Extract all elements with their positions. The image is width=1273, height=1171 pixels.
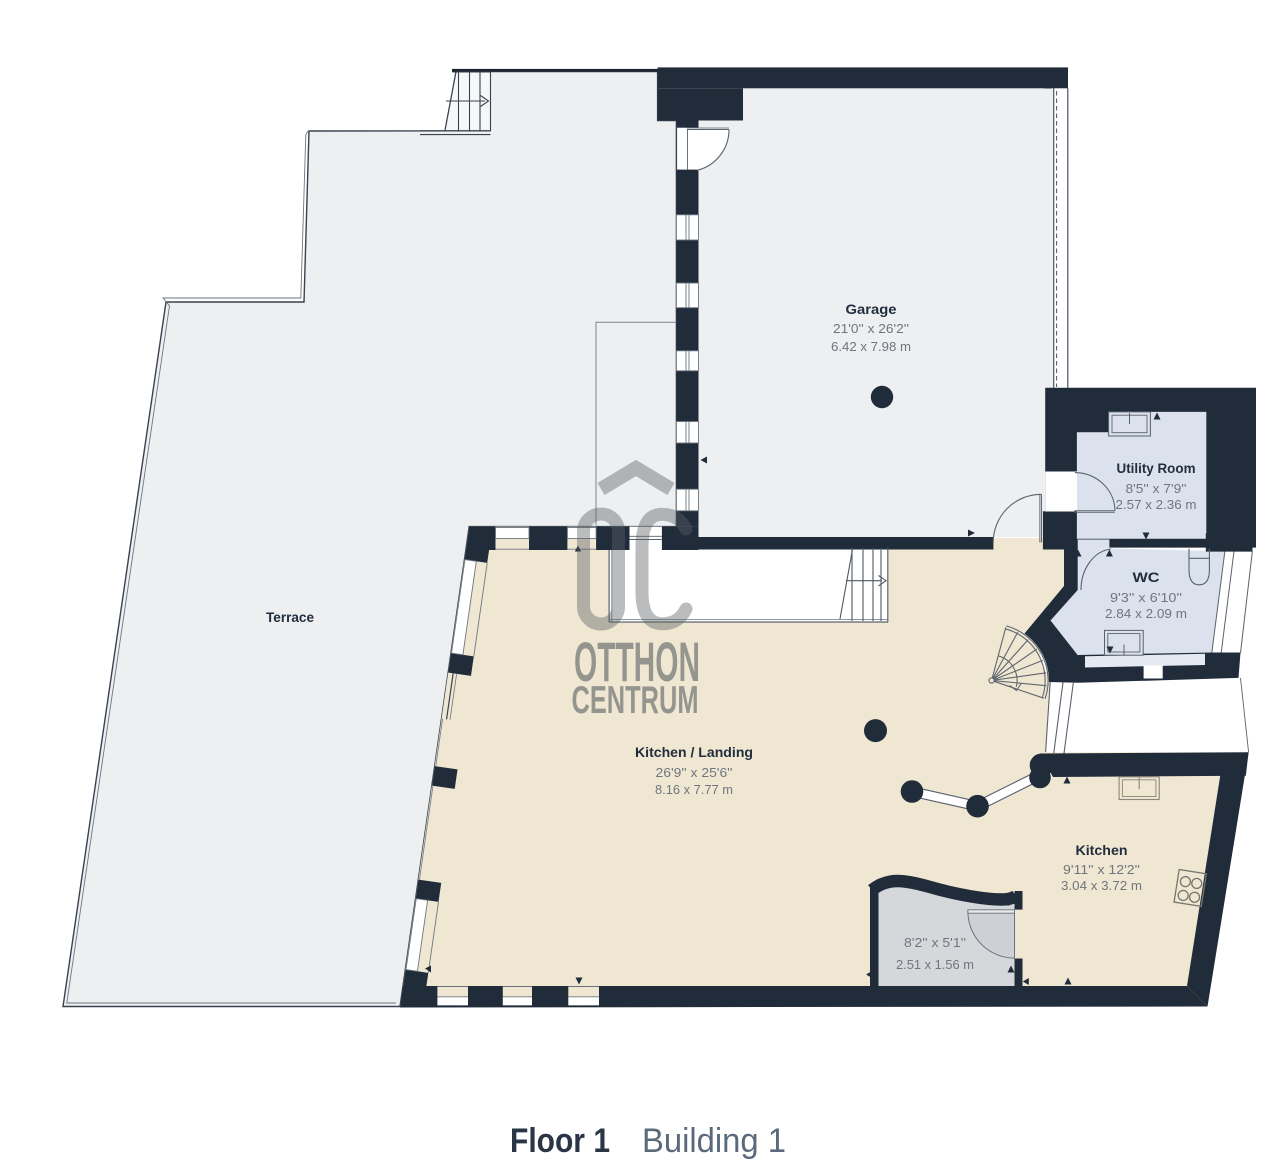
svg-text:Utility Room: Utility Room — [1117, 461, 1196, 476]
svg-text:2.51 x 1.56 m: 2.51 x 1.56 m — [896, 958, 974, 972]
svg-text:Terrace: Terrace — [266, 610, 314, 625]
svg-text:CENTRUM: CENTRUM — [572, 679, 699, 722]
svg-text:6.42 x 7.98 m: 6.42 x 7.98 m — [831, 340, 911, 354]
svg-text:8.16 x 7.77 m: 8.16 x 7.77 m — [655, 783, 733, 797]
svg-text:Garage: Garage — [846, 302, 898, 317]
svg-text:2.84 x 2.09 m: 2.84 x 2.09 m — [1105, 607, 1187, 621]
svg-text:2.57 x 2.36 m: 2.57 x 2.36 m — [1116, 498, 1197, 512]
svg-text:8'2'' x 5'1'': 8'2'' x 5'1'' — [904, 936, 966, 950]
svg-text:Building 1: Building 1 — [642, 1122, 786, 1160]
svg-text:26'9'' x 25'6'': 26'9'' x 25'6'' — [656, 766, 733, 780]
svg-text:9'3'' x 6'10'': 9'3'' x 6'10'' — [1110, 591, 1182, 605]
svg-text:Kitchen / Landing: Kitchen / Landing — [635, 745, 753, 760]
svg-text:9'11'' x 12'2'': 9'11'' x 12'2'' — [1063, 863, 1140, 877]
svg-text:Kitchen: Kitchen — [1076, 843, 1128, 858]
svg-text:8'5'' x 7'9'': 8'5'' x 7'9'' — [1126, 482, 1187, 496]
svg-text:21'0'' x 26'2'': 21'0'' x 26'2'' — [833, 322, 909, 336]
svg-text:WC: WC — [1133, 570, 1160, 585]
svg-text:Floor 1: Floor 1 — [510, 1122, 610, 1160]
svg-text:3.04 x 3.72 m: 3.04 x 3.72 m — [1061, 879, 1142, 893]
